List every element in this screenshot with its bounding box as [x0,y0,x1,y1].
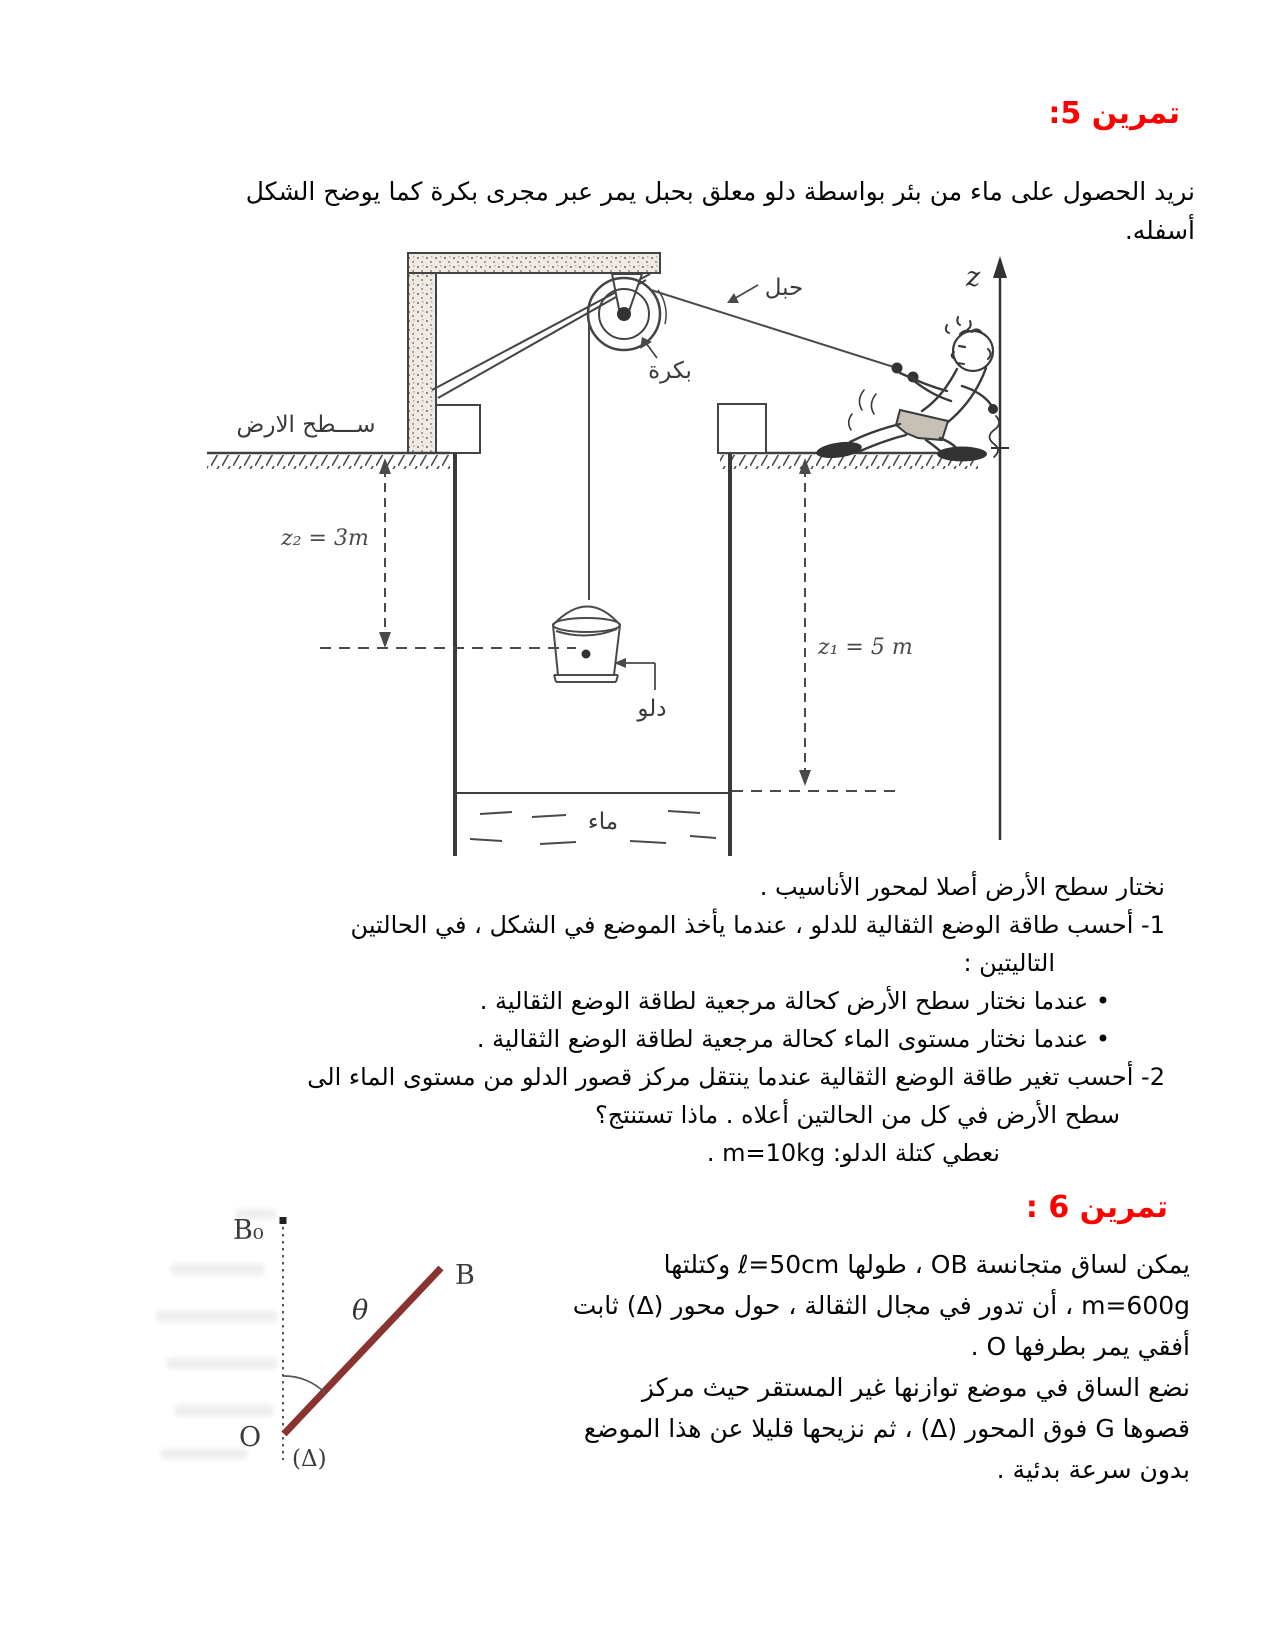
body6-line-4: نضع الساق في موضع توازنها غير المستقر حي… [520,1367,1190,1408]
support-post [408,253,436,453]
intro-line-1: نريد الحصول على ماء من بئر بواسطة دلو مع… [115,172,1195,211]
exercise6-body: يمكن لساق متجانسة OB ، طولها ℓ=50cm وكتل… [520,1244,1190,1490]
z2-measure: z₂ = 3m [280,458,391,648]
exercise5-title: تمرين 5: [1048,96,1180,131]
body6-line-3: أفقي يمر بطرفها O . [520,1326,1190,1367]
well-pulley-sketch: ماء z₂ = 3m z₁ = 5 m [200,228,1020,860]
b0-label: B₀ [233,1215,264,1246]
man-pulling-rope [815,317,999,462]
bucket-label: دلو [636,696,666,722]
body5-bullet-2: • عندما نختار مستوى الماء كحالة مرجعية ل… [100,1020,1165,1058]
body5-line-1: نختار سطح الأرض أصلا لمحور الأناسيب . [100,868,1165,906]
ground-surface-label: ســـطح الارض [237,412,376,438]
exercise6-title: تمرين 6 : [1026,1190,1168,1225]
document-page: تمرين 5: نريد الحصول على ماء من بئر بواس… [0,0,1275,1650]
z1-measure: z₁ = 5 m [732,458,913,791]
z2-label: z₂ = 3m [280,526,369,551]
support-beam [408,253,660,273]
exercise5-body: نختار سطح الأرض أصلا لمحور الأناسيب . 1-… [100,868,1165,1172]
body5-line-6: 2- أحسب تغير طاقة الوضع الثقالية عندما ي… [100,1058,1165,1096]
b-label: B [455,1260,475,1291]
body5-line-7: سطح الأرض في كل من الحالتين أعلاه . ماذا… [100,1096,1165,1134]
body6-line-2: m=600g ، أن تدور في مجال الثقالة ، حول م… [520,1285,1190,1326]
head [953,331,993,371]
pulley-icon [588,278,666,350]
body6-line-6: بدون سرعة بدئية . [520,1449,1190,1490]
body5-line-2: 1- أحسب طاقة الوضع الثقالية للدلو ، عندم… [100,906,1165,944]
bucket-icon [553,607,620,683]
z1-label: z₁ = 5 m [817,635,913,660]
ground [207,453,978,469]
rope-label: حبل [765,275,804,301]
delta-axis-label: (Δ) [292,1446,327,1470]
water-label: ماء [588,809,618,835]
motion-arcs [849,390,876,430]
rope-callout: حبل [727,275,803,303]
pulley-callout: بكرة [640,337,692,384]
bucket-callout: دلو [614,658,667,722]
rod-diagram-sketch: B₀ B θ O (Δ) [140,1150,500,1470]
well-curb [718,404,766,453]
body5-bullet-1: • عندما نختار سطح الأرض كحالة مرجعية لطا… [100,982,1165,1020]
b0-point [280,1217,287,1224]
theta-arc [283,1376,325,1393]
rod-ob [284,1268,441,1434]
z-axis-label: z [965,262,981,293]
post-base-step [436,405,480,453]
well-pulley-figure: ماء z₂ = 3m z₁ = 5 m [200,228,1020,864]
foot-back [937,447,987,462]
body5-line-3: التاليتين : [100,944,1165,982]
o-label: O [239,1422,261,1453]
theta-label: θ [352,1295,368,1326]
rope-to-man [651,290,897,368]
pulley-label: بكرة [648,358,692,384]
body6-line-1: يمكن لساق متجانسة OB ، طولها ℓ=50cm وكتل… [520,1244,1190,1285]
rod-diagram: B₀ B θ O (Δ) [140,1150,500,1474]
hand-front [892,363,903,374]
body6-line-5: قصوها G فوق المحور (Δ) ، ثم نزيحها قليلا… [520,1408,1190,1449]
